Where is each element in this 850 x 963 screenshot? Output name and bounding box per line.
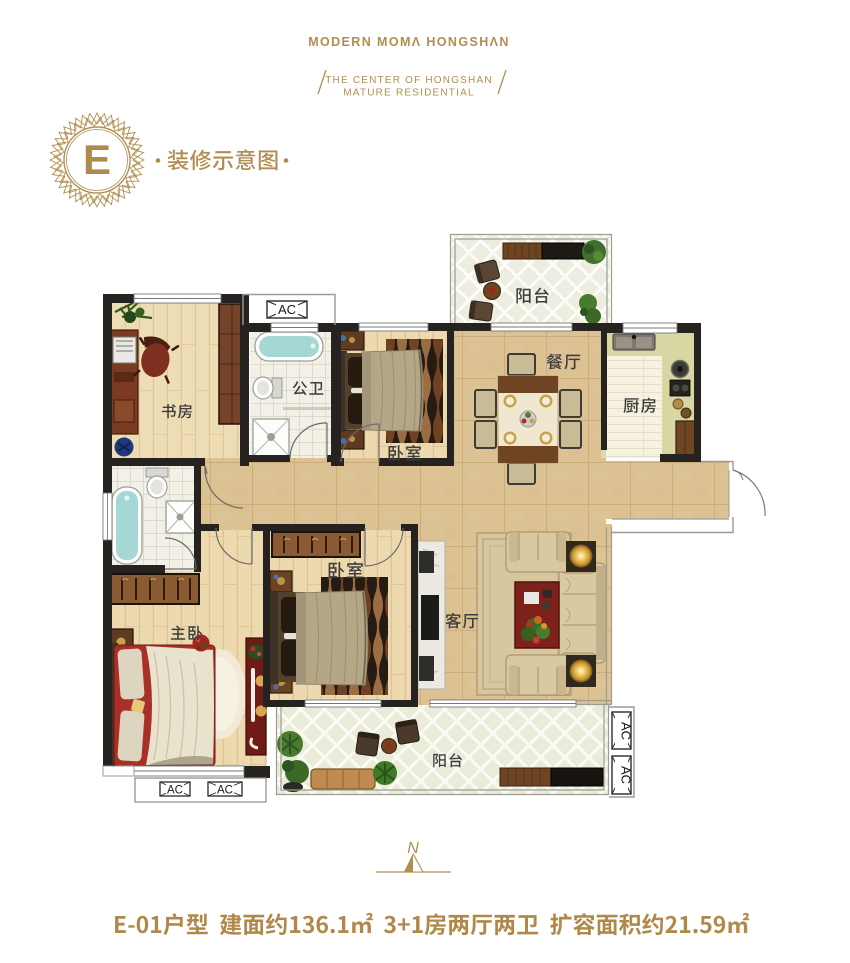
svg-text:AC: AC: [619, 722, 634, 740]
svg-text:E: E: [83, 136, 111, 183]
svg-text:AC: AC: [278, 302, 296, 317]
svg-text:AC: AC: [217, 785, 233, 797]
svg-text:MATURE RESIDENTIAL: MATURE RESIDENTIAL: [343, 88, 474, 99]
svg-text:AC: AC: [619, 766, 634, 784]
svg-text:AC: AC: [167, 785, 183, 797]
svg-text:THE CENTER OF HONGSHAN: THE CENTER OF HONGSHAN: [325, 75, 493, 86]
svg-text:MODERN MOMΛ HONGSHΛN: MODERN MOMΛ HONGSHΛN: [308, 35, 510, 49]
svg-text:N: N: [407, 840, 419, 857]
